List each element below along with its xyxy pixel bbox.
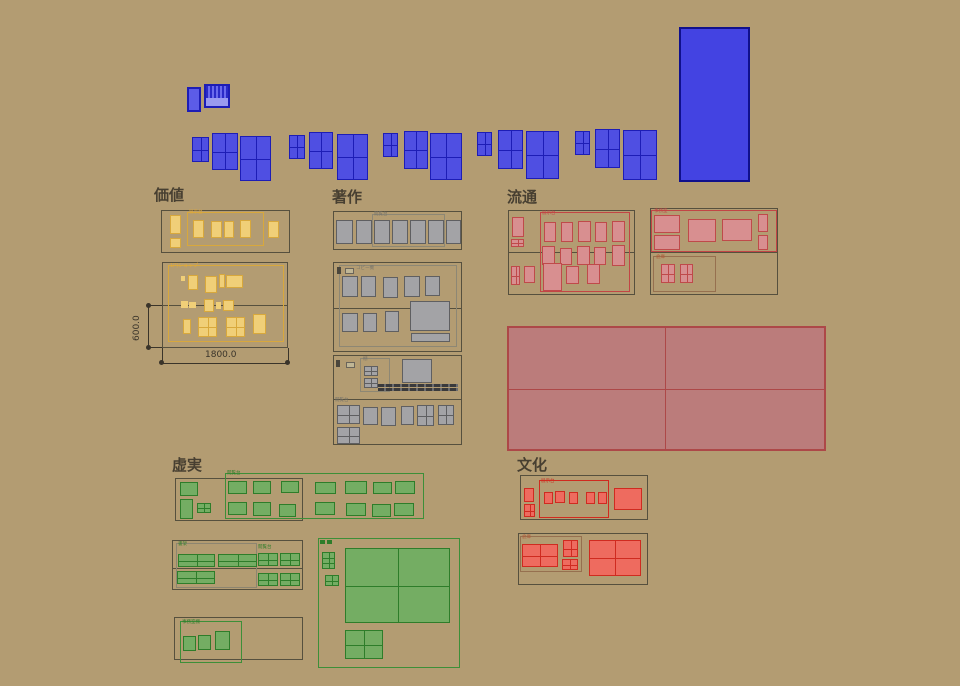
grid-line bbox=[418, 416, 433, 417]
grid-line bbox=[365, 371, 377, 372]
green-block bbox=[281, 481, 299, 493]
dark-bar bbox=[378, 384, 458, 387]
yellow-block bbox=[189, 302, 196, 308]
blue-table bbox=[595, 129, 620, 168]
grid-line bbox=[281, 560, 299, 561]
pink-block bbox=[594, 247, 606, 265]
grid-line bbox=[405, 150, 427, 151]
gray-grid bbox=[364, 366, 378, 376]
pink-block bbox=[722, 219, 752, 241]
grid-line bbox=[259, 560, 277, 561]
yellow-block bbox=[183, 319, 191, 334]
pink-block bbox=[758, 235, 768, 250]
green-chip bbox=[320, 540, 325, 544]
red-block-large bbox=[614, 488, 642, 510]
blue-table bbox=[192, 137, 209, 162]
gray-block bbox=[342, 313, 358, 332]
blue-table bbox=[526, 131, 559, 179]
blue-table bbox=[430, 133, 462, 180]
grid-line bbox=[563, 565, 577, 566]
pink-grid bbox=[511, 266, 520, 285]
red-grid bbox=[522, 544, 558, 567]
dim-dot bbox=[159, 360, 164, 365]
gray-block-large bbox=[402, 359, 432, 383]
grid-line bbox=[384, 145, 397, 146]
icon-chip bbox=[345, 268, 354, 274]
yellow-block bbox=[216, 302, 221, 309]
green-block bbox=[373, 482, 392, 494]
green-grid bbox=[178, 554, 215, 567]
green-big-area bbox=[345, 548, 450, 623]
pink-block bbox=[561, 222, 573, 242]
grid-line bbox=[281, 580, 299, 581]
grid-line bbox=[439, 415, 453, 416]
gray-block bbox=[363, 407, 378, 425]
green-block bbox=[346, 503, 366, 516]
dim-width-label: 1800.0 bbox=[205, 351, 237, 360]
pink-block bbox=[544, 222, 556, 242]
grid-line bbox=[310, 151, 332, 152]
grid-line bbox=[576, 143, 589, 144]
gray-block bbox=[342, 276, 358, 297]
green-block bbox=[180, 499, 193, 519]
green-grid bbox=[258, 573, 278, 586]
red-grid-large bbox=[589, 540, 641, 576]
gray-block bbox=[383, 277, 398, 298]
gray-block bbox=[392, 220, 408, 244]
red-block bbox=[598, 492, 607, 504]
grid-line bbox=[624, 155, 656, 156]
green-grid bbox=[258, 553, 278, 566]
tag-kyojitsu-a: 閲覧台 bbox=[227, 472, 241, 477]
gray-block bbox=[385, 311, 399, 332]
gray-block bbox=[404, 276, 420, 297]
grid-line bbox=[290, 147, 304, 148]
grid-line bbox=[219, 561, 256, 562]
green-block bbox=[394, 503, 414, 516]
green-block bbox=[253, 502, 271, 516]
grid-line bbox=[478, 144, 491, 145]
gray-block bbox=[401, 406, 414, 425]
grid-line bbox=[523, 556, 557, 557]
grid-line bbox=[179, 561, 214, 562]
grid-line bbox=[365, 383, 377, 384]
green-block bbox=[315, 482, 336, 494]
yellow-block bbox=[240, 220, 251, 238]
gray-block bbox=[446, 220, 461, 244]
grid-line bbox=[241, 159, 270, 160]
yellow-block bbox=[188, 275, 198, 290]
green-block bbox=[215, 631, 230, 650]
gray-block bbox=[381, 407, 396, 426]
section-label-kyojitsu: 虚実 bbox=[172, 458, 202, 473]
gray-grid bbox=[364, 378, 378, 388]
red-block bbox=[569, 492, 578, 504]
red-block bbox=[555, 491, 565, 503]
dim-dot bbox=[146, 303, 151, 308]
gray-block bbox=[336, 220, 353, 244]
gray-block-large bbox=[410, 301, 450, 331]
blue-table bbox=[240, 136, 271, 181]
red-block bbox=[524, 488, 534, 502]
tag-chosaku-d: 閲覧台 bbox=[335, 399, 349, 404]
grid-line bbox=[596, 149, 619, 150]
grid-line bbox=[590, 558, 640, 559]
pink-grid bbox=[661, 264, 675, 283]
blue-table bbox=[289, 135, 305, 159]
yellow-block bbox=[181, 301, 188, 308]
tag-kyojitsu-b: 書架 bbox=[178, 543, 187, 548]
green-grid bbox=[177, 571, 215, 584]
grid-line bbox=[326, 581, 338, 582]
tag-kachi-a: 展示台 bbox=[189, 211, 203, 216]
section-label-ryutsu: 流通 bbox=[507, 190, 537, 205]
green-grid bbox=[280, 553, 300, 566]
blue-table bbox=[498, 130, 523, 169]
grid-line bbox=[431, 157, 461, 158]
section-label-kachi: 価値 bbox=[154, 188, 184, 203]
grid-line bbox=[329, 553, 330, 568]
grid-line bbox=[338, 157, 367, 158]
red-block bbox=[544, 492, 553, 504]
dim-v-line bbox=[148, 305, 149, 348]
tag-chosaku-b: コピー機 bbox=[356, 267, 374, 272]
dim-dot bbox=[285, 360, 290, 365]
blue-table bbox=[623, 130, 657, 180]
tag-chosaku-a: 閲覧台 bbox=[374, 213, 388, 218]
gray-block bbox=[356, 220, 372, 244]
tag-kachi-b: 1円ショップ bbox=[170, 264, 198, 269]
yellow-block bbox=[193, 220, 204, 238]
blue-table bbox=[404, 131, 428, 169]
dim-height-label: 600.0 bbox=[133, 315, 142, 341]
green-grid bbox=[345, 630, 383, 659]
pink-block bbox=[612, 221, 625, 242]
green-block bbox=[183, 636, 196, 651]
yellow-block bbox=[181, 276, 185, 281]
green-block bbox=[228, 502, 247, 515]
blue-table bbox=[383, 133, 398, 157]
grid-line bbox=[564, 549, 577, 550]
pink-block bbox=[512, 217, 524, 237]
gray-grid bbox=[417, 405, 434, 426]
grid-line bbox=[323, 563, 334, 564]
blue-striped-bottom bbox=[206, 98, 228, 106]
blue-table bbox=[212, 133, 238, 170]
green-block bbox=[315, 502, 335, 515]
pink-block bbox=[654, 235, 680, 250]
blue-table bbox=[575, 131, 590, 155]
icon-chip bbox=[346, 362, 355, 368]
grid-line bbox=[213, 152, 237, 153]
green-grid bbox=[322, 552, 335, 569]
green-grid bbox=[280, 573, 300, 586]
pink-grid bbox=[680, 264, 693, 283]
gray-block bbox=[361, 276, 376, 297]
grid-line bbox=[199, 327, 216, 328]
pink-grid bbox=[511, 239, 524, 247]
yellow-block bbox=[223, 300, 234, 311]
tag-bunka-a: 展示台 bbox=[541, 480, 555, 485]
tag-kyojitsu-d: 事務室棚 bbox=[182, 621, 200, 626]
grid-line bbox=[346, 586, 449, 587]
grid-line bbox=[193, 150, 208, 151]
gray-block bbox=[428, 220, 444, 244]
grid-line bbox=[681, 274, 692, 275]
yellow-block bbox=[226, 317, 245, 337]
grid-line bbox=[662, 274, 674, 275]
gray-block bbox=[425, 276, 440, 296]
green-block bbox=[253, 481, 271, 494]
green-block bbox=[180, 482, 198, 496]
tag-chosaku-c: 棚 bbox=[363, 358, 368, 363]
red-grid bbox=[524, 504, 535, 517]
yellow-block bbox=[198, 317, 217, 337]
green-block bbox=[228, 481, 247, 494]
grid-line bbox=[338, 415, 359, 416]
section-label-bunka: 文化 bbox=[517, 458, 547, 473]
blue-table bbox=[309, 132, 333, 169]
gray-grid bbox=[438, 405, 454, 425]
pink-block bbox=[688, 219, 716, 242]
gray-block bbox=[374, 220, 390, 244]
tag-ryutsu-a: 展示台 bbox=[542, 212, 556, 217]
yellow-block bbox=[170, 215, 181, 234]
yellow-block bbox=[205, 276, 217, 293]
green-block bbox=[372, 504, 391, 517]
blue-striped-top bbox=[206, 86, 228, 98]
dim-h-line bbox=[162, 363, 288, 364]
green-block bbox=[279, 504, 296, 517]
yellow-block bbox=[170, 238, 181, 248]
red-block bbox=[586, 492, 595, 504]
green-block bbox=[345, 481, 367, 494]
grid-line bbox=[512, 243, 523, 244]
tag-bunka-b: 倉庫 bbox=[522, 536, 531, 541]
pink-block bbox=[654, 215, 680, 233]
green-grid bbox=[197, 503, 211, 513]
chosaku-box-c-midline bbox=[333, 399, 462, 400]
green-chip bbox=[327, 540, 332, 544]
dim-dot bbox=[146, 345, 151, 350]
yellow-block bbox=[226, 275, 243, 288]
yellow-block bbox=[268, 221, 279, 238]
ryutsu-big-hline bbox=[507, 389, 826, 390]
pink-block bbox=[524, 266, 535, 283]
pink-block bbox=[595, 222, 607, 242]
ryutsu-box-b-midline bbox=[650, 252, 778, 253]
green-block bbox=[198, 635, 211, 650]
pink-block bbox=[577, 246, 590, 265]
gray-grid bbox=[337, 405, 360, 424]
grid-line bbox=[346, 645, 382, 646]
gray-grid bbox=[337, 427, 360, 444]
tag-kyojitsu-c: 閲覧台 bbox=[258, 546, 272, 551]
pink-block bbox=[612, 245, 625, 266]
grid-line bbox=[323, 558, 334, 559]
grid-line bbox=[512, 276, 519, 277]
gray-block-bar bbox=[411, 333, 450, 342]
grid-line bbox=[178, 578, 214, 579]
yellow-block bbox=[219, 274, 225, 288]
grid-line bbox=[227, 327, 244, 328]
yellow-block bbox=[253, 314, 266, 334]
blue-table bbox=[477, 132, 492, 156]
section-label-chosaku: 著作 bbox=[332, 190, 362, 205]
green-grid bbox=[218, 554, 257, 567]
grid-line bbox=[198, 508, 210, 509]
tag-ryutsu-c: 倉庫 bbox=[656, 256, 665, 261]
grid-line bbox=[499, 150, 522, 151]
yellow-block bbox=[211, 221, 222, 238]
blue-big-rect bbox=[679, 27, 750, 182]
yellow-block bbox=[204, 299, 214, 312]
icon-chip bbox=[337, 267, 341, 274]
pink-block bbox=[543, 263, 562, 291]
icon-chip bbox=[336, 360, 340, 367]
grid-line bbox=[338, 436, 359, 437]
red-grid bbox=[563, 540, 578, 557]
gray-block bbox=[410, 220, 426, 244]
blue-table bbox=[337, 134, 368, 180]
tag-ryutsu-b: 事務室 bbox=[654, 210, 668, 215]
grid-line bbox=[259, 580, 277, 581]
pink-block bbox=[566, 266, 579, 284]
grid-line bbox=[527, 155, 558, 156]
yellow-block bbox=[224, 221, 234, 238]
gray-block bbox=[363, 313, 377, 332]
red-grid bbox=[562, 559, 578, 570]
pink-block bbox=[587, 264, 600, 284]
pink-block bbox=[758, 214, 768, 232]
pink-block bbox=[578, 221, 591, 242]
dark-bar bbox=[378, 388, 458, 391]
drawing-canvas: 価値著作流通虚実文化600.01800.0展示台1円ショップ閲覧台コピー機棚閲覧… bbox=[0, 0, 960, 686]
green-block bbox=[395, 481, 415, 494]
blue-small-rect bbox=[187, 87, 201, 112]
grid-line bbox=[525, 511, 534, 512]
green-grid bbox=[325, 575, 339, 586]
